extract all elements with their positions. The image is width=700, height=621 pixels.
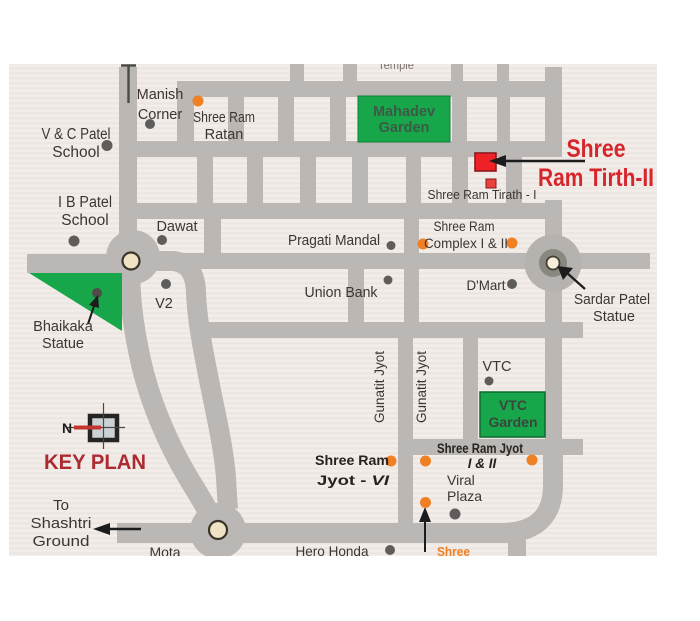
svg-text:Shree Ram: Shree Ram xyxy=(193,110,255,126)
svg-text:Union Bank: Union Bank xyxy=(305,285,379,301)
svg-text:Gunatit Jyot: Gunatit Jyot xyxy=(372,351,387,423)
svg-text:I & II: I & II xyxy=(468,456,497,471)
svg-text:Dawat: Dawat xyxy=(156,219,197,235)
svg-text:N: N xyxy=(62,420,72,436)
svg-text:Ram Tirth-II: Ram Tirth-II xyxy=(538,164,654,192)
svg-text:Statue: Statue xyxy=(593,309,635,325)
svg-text:Ratan: Ratan xyxy=(205,127,244,143)
svg-text:KEY PLAN: KEY PLAN xyxy=(44,451,146,474)
svg-text:V & C Patel: V & C Patel xyxy=(42,126,111,143)
svg-text:Shree Ram: Shree Ram xyxy=(434,218,495,234)
svg-text:Shree Ram Tirath - I: Shree Ram Tirath - I xyxy=(428,187,537,202)
svg-text:VTC: VTC xyxy=(483,359,512,375)
svg-text:Shree Ram: Shree Ram xyxy=(315,452,389,468)
svg-text:Garden: Garden xyxy=(379,120,430,136)
svg-text:Pragati Mandal: Pragati Mandal xyxy=(288,233,380,249)
svg-text:I B Patel: I B Patel xyxy=(58,194,112,211)
svg-text:Bhaikaka: Bhaikaka xyxy=(33,319,94,335)
svg-text:Jyot - VI: Jyot - VI xyxy=(317,472,390,488)
svg-text:V2: V2 xyxy=(155,296,173,312)
svg-text:Mahadev: Mahadev xyxy=(373,104,435,120)
svg-text:D'Mart: D'Mart xyxy=(467,277,506,293)
svg-text:Manish: Manish xyxy=(137,87,184,103)
svg-text:School: School xyxy=(61,212,108,229)
svg-text:Shree: Shree xyxy=(567,135,626,163)
svg-text:School: School xyxy=(52,144,99,161)
svg-text:Corner: Corner xyxy=(138,107,182,123)
svg-text:Sardar Patel: Sardar Patel xyxy=(574,292,650,308)
svg-text:Garden: Garden xyxy=(488,414,537,430)
svg-text:VTC: VTC xyxy=(499,397,527,413)
svg-text:Ground: Ground xyxy=(33,533,90,550)
svg-text:Statue: Statue xyxy=(42,336,84,352)
svg-text:Shashtri: Shashtri xyxy=(31,515,92,532)
svg-text:Plaza: Plaza xyxy=(447,488,482,504)
svg-text:Gunatit Jyot: Gunatit Jyot xyxy=(414,351,429,423)
svg-text:Complex I & II: Complex I & II xyxy=(424,235,508,251)
svg-text:Shree Ram Jyot: Shree Ram Jyot xyxy=(437,441,523,456)
svg-text:To: To xyxy=(53,497,69,514)
svg-text:Viral: Viral xyxy=(447,472,475,488)
